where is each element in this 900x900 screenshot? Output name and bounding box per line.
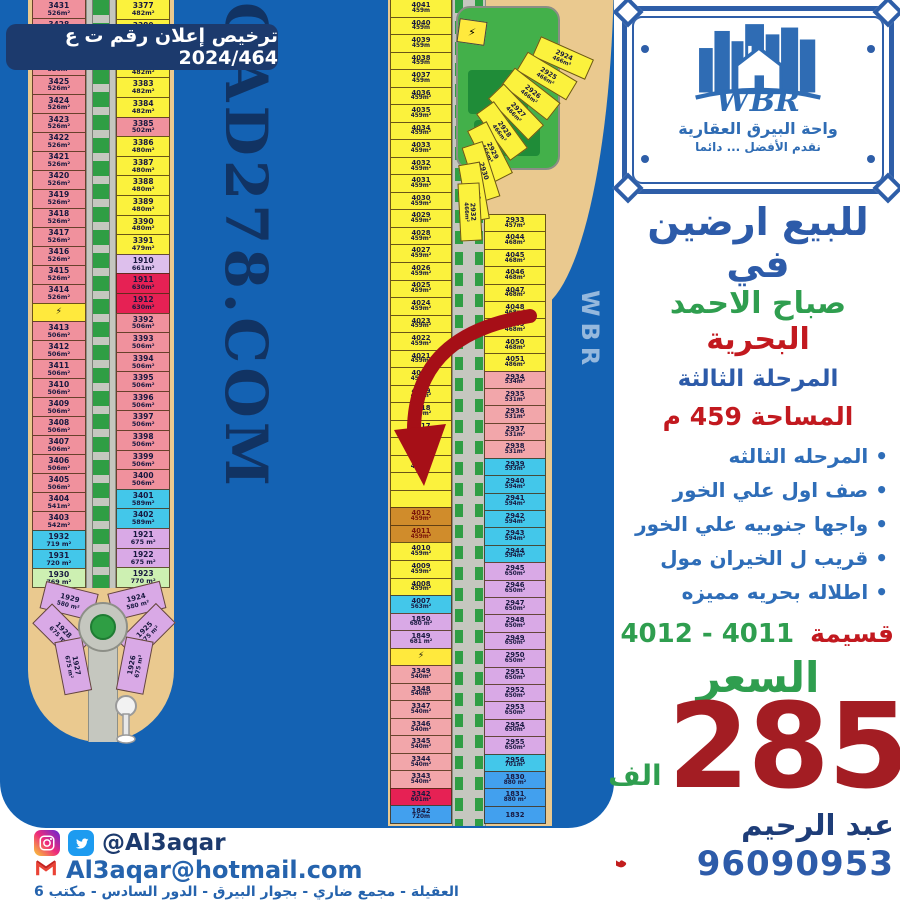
plot: 2935531m²: [484, 388, 546, 406]
plot: 4008459m²: [390, 578, 452, 597]
plot: 4018459m²: [390, 402, 452, 421]
plot: 2937531m²: [484, 423, 546, 441]
plot: 3344540m²: [390, 753, 452, 772]
plot: 3349540m²: [390, 665, 452, 684]
plot: 2949650m²: [484, 632, 546, 650]
plot: 4051486m²: [484, 353, 546, 371]
plot: 3409506m²: [32, 397, 86, 417]
info-panel: WBR واحة البيرق العقارية نقدم الأفضل ...…: [616, 0, 900, 900]
plot: 4020459m²: [390, 367, 452, 386]
plot: 4021459m²: [390, 350, 452, 369]
phase-line: المرحلة الثالثة: [616, 366, 900, 392]
location-line: صباح الاحمد البحرية: [616, 286, 900, 358]
plot: 2947650m²: [484, 597, 546, 615]
agent-phone[interactable]: 96090953: [697, 844, 894, 884]
plot: 2956701m²: [484, 754, 546, 772]
pushpin-icon: [110, 694, 142, 750]
email-row: Al3aqar@hotmail.com: [34, 856, 616, 884]
sea-watermark-wbr: WBR: [576, 290, 604, 371]
plot: [390, 472, 452, 491]
plot: 4010459m²: [390, 542, 452, 561]
plot: 1922675 m²: [116, 548, 170, 569]
roundabout-green: [90, 614, 116, 640]
plot: 3411506m²: [32, 359, 86, 379]
feature-item: واجها جنوبيه علي الخور: [618, 513, 888, 535]
company-slogan: نقدم الأفضل ... دائما: [695, 140, 821, 154]
instagram-icon[interactable]: [34, 830, 60, 856]
plot: 4007563m²: [390, 595, 452, 614]
ad-headline: للبيع ارضين في: [616, 202, 900, 286]
middle-east-column: 2933457m² 4044468m² 4045468m² 4046468m² …: [484, 215, 546, 824]
plot: 3392506m²: [116, 313, 170, 334]
plot: 2948650m²: [484, 614, 546, 632]
feature-list: المرحله الثالثهصف اول علي الخورواجها جنو…: [616, 445, 890, 603]
plot: 3410506m²: [32, 378, 86, 398]
price-row: الف 285: [616, 696, 900, 796]
plot: 3402589m²: [116, 508, 170, 529]
plot: [390, 490, 452, 509]
roundabout: [78, 602, 128, 652]
feature-item: صف اول علي الخور: [618, 479, 888, 501]
plot: 2941594m²: [484, 493, 546, 511]
parcel-label: قسيمة: [810, 619, 894, 648]
plot: [390, 648, 452, 667]
location-name: صباح الاحمد: [670, 286, 846, 321]
price-unit: الف: [608, 759, 661, 796]
email-address[interactable]: Al3aqar@hotmail.com: [66, 856, 362, 884]
plot: 3342601m²: [390, 788, 452, 807]
plot: 3405506m²: [32, 473, 86, 493]
plot: 2946650m²: [484, 580, 546, 598]
plot: 1931720 m²: [32, 549, 86, 569]
plot: 3394506m²: [116, 352, 170, 373]
office-address: العقيلة - مجمع ضاري - بجوار البيرق - الد…: [34, 884, 616, 900]
wbr-logo-plaque: WBR واحة البيرق العقارية نقدم الأفضل ...…: [622, 6, 894, 194]
plot: 3398506m²: [116, 430, 170, 451]
twitter-icon[interactable]: [68, 830, 94, 856]
plot: 2954650m²: [484, 719, 546, 737]
plot: 3401589m²: [116, 489, 170, 510]
plot: 4016459m²: [390, 437, 452, 456]
social-handle[interactable]: @Al3aqar: [102, 830, 226, 856]
plot: 2945650m²: [484, 562, 546, 580]
plot: 3346540m²: [390, 718, 452, 737]
location-name-red: البحرية: [706, 322, 810, 357]
plot: 3348540m²: [390, 683, 452, 702]
plot: 4049468m²: [484, 318, 546, 336]
plot: 3403542m²: [32, 511, 86, 531]
plot-map: QAD278.COM WBR 3431526m² 3428526m² 34275…: [0, 0, 614, 828]
plot: 2950650m²: [484, 649, 546, 667]
parcel-numbers: 4012 - 4011: [620, 619, 794, 649]
plot: 2953650m²: [484, 701, 546, 719]
plot: 4050468m²: [484, 336, 546, 354]
plot: 2943594m²: [484, 527, 546, 545]
plot: 4023459m²: [390, 315, 452, 334]
plot: 1921675 m²: [116, 528, 170, 549]
plot: 3396506m²: [116, 391, 170, 412]
plot: 3397506m²: [116, 410, 170, 431]
plot: 1932719 m²: [32, 530, 86, 550]
plot: 4009459m²: [390, 560, 452, 579]
plot: [32, 303, 86, 323]
plot: 4022459m²: [390, 332, 452, 351]
plot: 3393506m²: [116, 332, 170, 353]
plot: 2932466m²: [457, 182, 482, 241]
plot: 1842720m: [390, 805, 452, 824]
area-line: المساحة 459 م: [616, 402, 900, 431]
plot: 3404541m²: [32, 492, 86, 512]
license-badge: ترخيص إعلان رقم ت ع 2024/464: [6, 24, 278, 70]
plot: 2952650m²: [484, 684, 546, 702]
feature-item: اطلاله بحريه مميزه: [618, 581, 888, 603]
page: QAD278.COM WBR 3431526m² 3428526m² 34275…: [0, 0, 900, 900]
plot: 3408506m²: [32, 416, 86, 436]
footer-contact-bar: @Al3aqar Al3aqar@hotmail.com العقيلة - م…: [0, 828, 616, 900]
plot: 3413506m²: [32, 321, 86, 341]
plot: 1849681 m²: [390, 630, 452, 649]
plot: 2944594m²: [484, 545, 546, 563]
plot: 3407506m²: [32, 435, 86, 455]
plot: 2940594m²: [484, 475, 546, 493]
brand-name: WBR: [716, 87, 800, 117]
plot: 3347540m²: [390, 700, 452, 719]
plot: 2955650m²: [484, 736, 546, 754]
plot: 3399506m²: [116, 450, 170, 471]
plot: 4017459m²: [390, 420, 452, 439]
plot: 2951650m²: [484, 667, 546, 685]
feature-item: قريب ل الخيران مول: [618, 547, 888, 569]
gmail-icon[interactable]: [34, 859, 58, 881]
plot: 3400506m²: [116, 469, 170, 490]
wbr-logo: WBR واحة البيرق العقارية نقدم الأفضل ...…: [635, 19, 881, 181]
plot: 3343540m²: [390, 770, 452, 789]
plot: 3406506m²: [32, 454, 86, 474]
plot: 1831880 m²: [484, 788, 546, 806]
plot: 4015459m²: [390, 455, 452, 474]
plot: 3345540m²: [390, 735, 452, 754]
plot: 2936531m²: [484, 405, 546, 423]
plot: 1850680 m²: [390, 613, 452, 632]
plot: 4019459m²: [390, 385, 452, 404]
plot: 4012459m²: [390, 507, 452, 526]
plot: 2938531m²: [484, 440, 546, 458]
feature-item: المرحله الثالثه: [618, 445, 888, 467]
plot: 2942594m²: [484, 510, 546, 528]
plot: 2939593m²: [484, 458, 546, 476]
plot: 3395506m²: [116, 371, 170, 392]
plot: 3412506m²: [32, 340, 86, 360]
parcel-row: قسيمة 4012 - 4011: [616, 619, 894, 649]
social-row: @Al3aqar: [34, 830, 616, 856]
company-name-arabic: واحة البيرق العقارية: [678, 119, 838, 138]
price-value: 285: [668, 696, 900, 796]
plot: 1832: [484, 806, 546, 824]
plot: 2934534m²: [484, 371, 546, 389]
plot: 4011459m²: [390, 525, 452, 544]
plot: 1830880 m²: [484, 771, 546, 789]
plot: 4048468m²: [484, 301, 546, 319]
